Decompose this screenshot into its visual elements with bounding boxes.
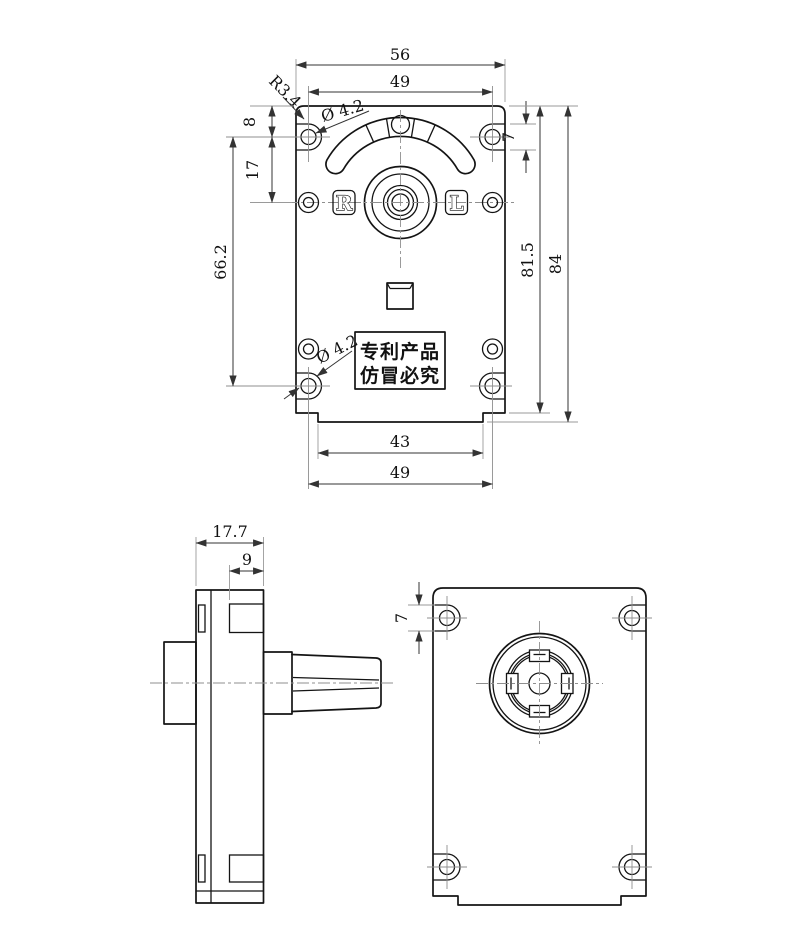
dim-edge-to-hole: 8: [240, 117, 259, 127]
dim-front-width-top: 56: [390, 45, 410, 64]
dim-hole-pitch: 17: [243, 160, 262, 180]
patent-text-line2: 仿冒必究: [360, 364, 440, 387]
dim-side-case-depth: 9: [242, 550, 252, 569]
dim-tab-span: 43: [390, 432, 410, 451]
dim-hole-span-bottom: 49: [390, 463, 410, 482]
side-dimensions: 17.7 9: [196, 522, 264, 600]
back-motor-boss: [476, 621, 603, 747]
front-hole-centerlines: [226, 86, 512, 489]
dim-hole-span-vertical: 66.2: [211, 244, 230, 280]
dim-height-to-step: 81.5: [518, 242, 537, 278]
side-bosses: [199, 604, 264, 882]
side-view: 17.7 9: [150, 522, 393, 903]
patent-plate: 专利产品 仿冒必究: [355, 332, 445, 389]
marker-L: L: [449, 191, 463, 215]
marker-R: R: [336, 191, 353, 215]
back-view: 7: [392, 582, 652, 905]
dim-back-ear-height: 7: [392, 613, 411, 623]
dim-front-hole-span-top: 49: [390, 72, 410, 91]
drawing-canvas: R L 专利产品 仿冒必究 56 49: [0, 0, 800, 952]
front-dimensions: 56 49 R3.4 Ø 4.2 8 17 66.2: [211, 45, 578, 484]
radius-label: R3.4: [265, 71, 305, 111]
back-body-outline: [433, 588, 646, 905]
front-view: R L 专利产品 仿冒必究 56 49: [211, 45, 578, 489]
terminal-window: [387, 283, 413, 309]
dim-front-ear-height: 7: [499, 132, 518, 142]
dia-label-top: Ø 4.2: [319, 96, 366, 126]
gear-motor-drawing: R L 专利产品 仿冒必究 56 49: [0, 0, 800, 952]
front-arc-slot: [326, 116, 475, 174]
patent-text-line1: 专利产品: [360, 340, 440, 363]
dim-height-total: 84: [546, 254, 565, 274]
dim-side-depth-total: 17.7: [212, 522, 248, 541]
